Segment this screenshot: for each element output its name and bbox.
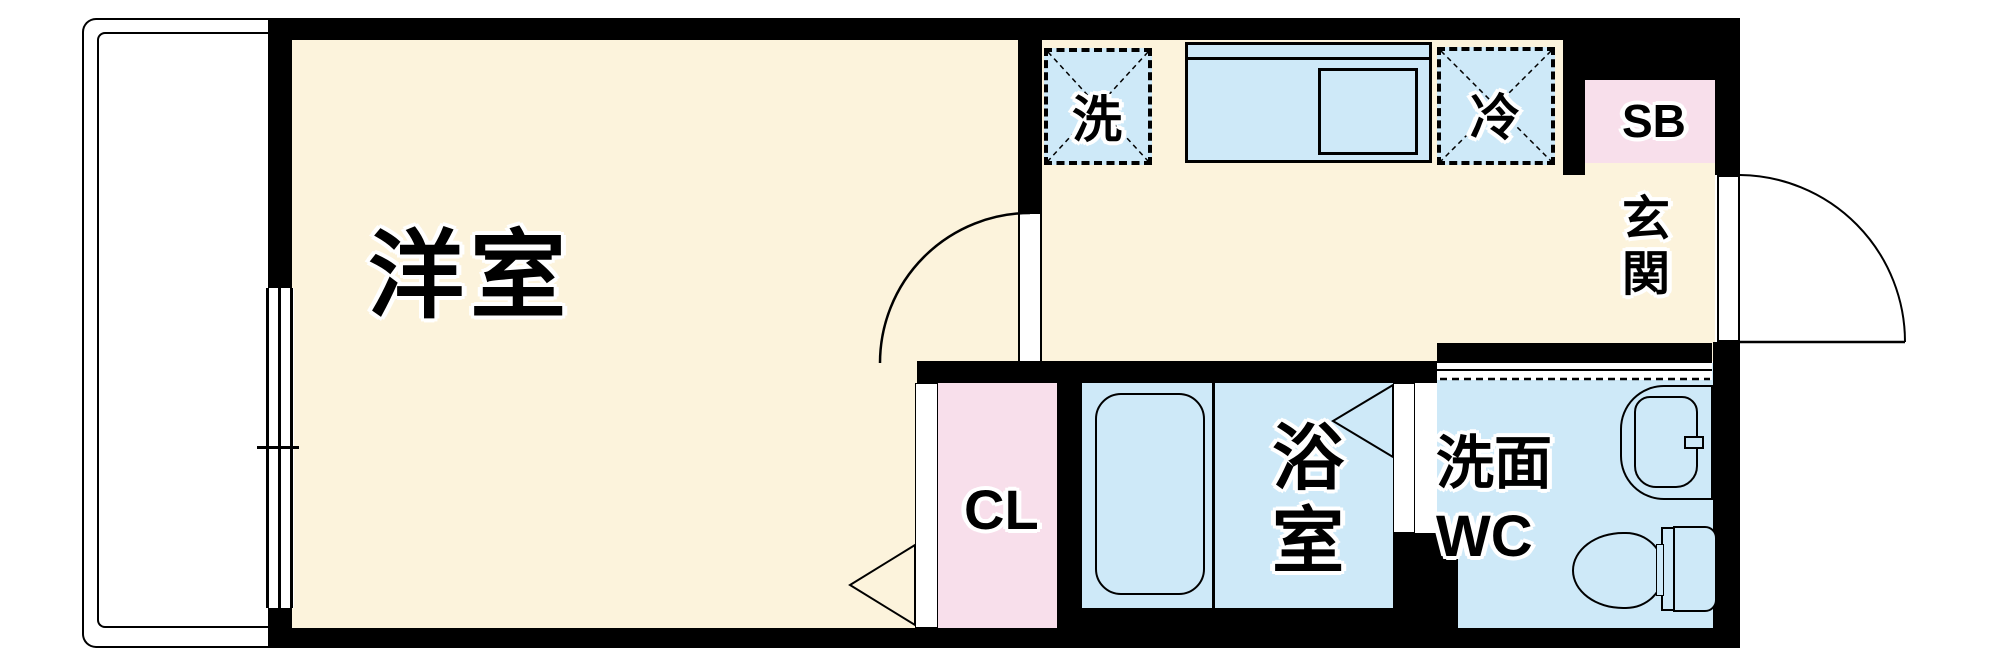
wall-fridge-sb-divider	[1563, 18, 1585, 175]
entrance-label: 玄関	[1622, 192, 1675, 302]
closet-door-opening	[915, 383, 938, 628]
closet-label: CL	[964, 477, 1039, 542]
wall-left-upper	[268, 18, 292, 288]
fridge-space-label: 冷	[1470, 78, 1520, 150]
toilet-flush-handle	[1656, 544, 1664, 596]
wall-right-lower	[1713, 342, 1740, 648]
wall-bottom-east	[1393, 628, 1740, 648]
wall-top	[268, 18, 1740, 40]
entrance-door-swing-arc-icon	[1740, 175, 1905, 342]
wall-top-right-block	[1563, 18, 1740, 80]
wall-room-divider	[1018, 38, 1042, 212]
kitchen-counter-edge-line	[1188, 57, 1429, 60]
bathroom-label: 浴室	[1272, 418, 1350, 584]
wall-bottom-bath	[1082, 608, 1393, 648]
wall-right-upper	[1715, 18, 1740, 175]
floor-plan: 洋室 洗 冷 SB 玄関 CL 浴室 洗面WC	[0, 0, 1997, 670]
shoe-box-label: SB	[1622, 94, 1686, 148]
wall-entrance-bottom	[1437, 343, 1712, 363]
toilet-tank-icon	[1673, 526, 1717, 612]
wall-closet-bath-top	[917, 361, 1437, 383]
western-room-label: 洋室	[368, 198, 572, 337]
kitchen-sink-icon	[1318, 68, 1418, 155]
washbasin-faucet	[1684, 436, 1704, 449]
washroom-door-panel-line	[1437, 369, 1712, 371]
toilet-bowl-icon	[1572, 532, 1665, 609]
bathroom-door-opening	[1393, 383, 1415, 533]
washer-space-label: 洗	[1072, 80, 1122, 152]
window-center-tick	[257, 446, 299, 449]
western-room-door-leaf	[1018, 212, 1042, 363]
washroom-wc-label: 洗面WC	[1436, 428, 1564, 573]
balcony-railing-inner	[97, 32, 292, 628]
wall-bottom-west	[268, 628, 1082, 648]
bathroom-partition-line	[1212, 383, 1215, 608]
entrance-door-leaf	[1717, 175, 1740, 342]
washroom-door-opening	[1437, 363, 1712, 380]
wall-closet-bath-divider	[1057, 383, 1082, 628]
bathtub-icon	[1095, 393, 1205, 595]
